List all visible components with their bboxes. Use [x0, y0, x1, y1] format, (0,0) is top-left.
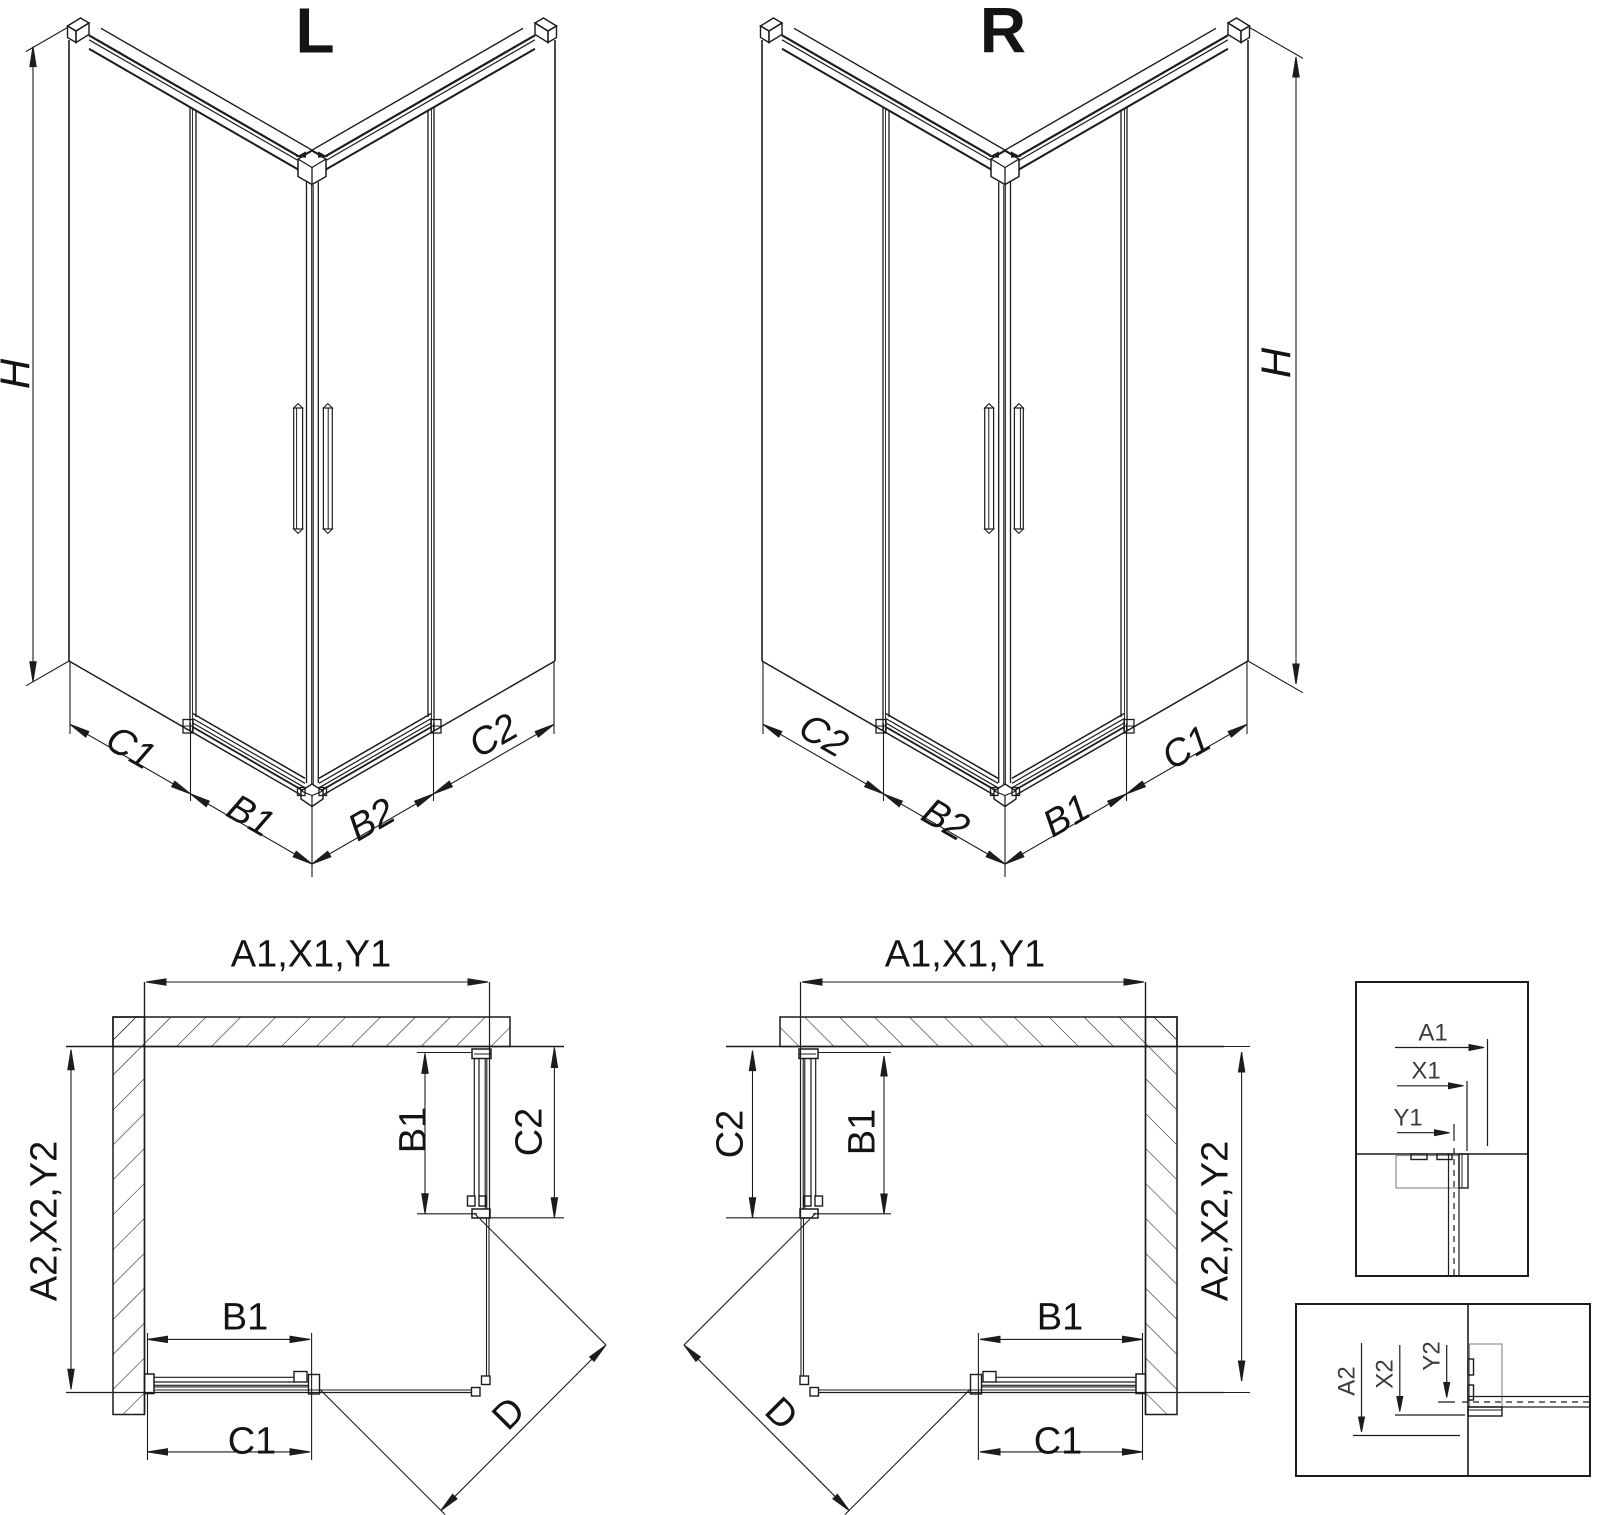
svg-text:A2,X2,Y2: A2,X2,Y2 [23, 1141, 65, 1302]
svg-text:C1: C1 [228, 1420, 277, 1462]
svg-text:X1: X1 [1411, 1057, 1440, 1084]
svg-text:C2: C2 [709, 1110, 751, 1159]
svg-text:A1,X1,Y1: A1,X1,Y1 [231, 933, 392, 975]
svg-text:Y2: Y2 [1418, 1341, 1445, 1370]
svg-text:A2,X2,Y2: A2,X2,Y2 [1194, 1141, 1236, 1302]
svg-text:R: R [980, 0, 1026, 66]
svg-text:H: H [1253, 347, 1300, 378]
svg-text:C1: C1 [1034, 1420, 1083, 1462]
svg-text:X2: X2 [1371, 1359, 1398, 1388]
svg-text:H: H [0, 358, 39, 389]
svg-text:Y1: Y1 [1393, 1104, 1422, 1131]
svg-text:A1: A1 [1418, 1019, 1447, 1046]
svg-text:A1,X1,Y1: A1,X1,Y1 [885, 933, 1046, 975]
svg-text:B1: B1 [222, 1296, 268, 1338]
svg-text:L: L [295, 0, 334, 66]
svg-text:B1: B1 [392, 1107, 434, 1153]
svg-text:A2: A2 [1333, 1366, 1360, 1395]
svg-text:B1: B1 [841, 1109, 883, 1155]
svg-text:C2: C2 [508, 1108, 550, 1157]
svg-text:B1: B1 [1037, 1296, 1083, 1338]
